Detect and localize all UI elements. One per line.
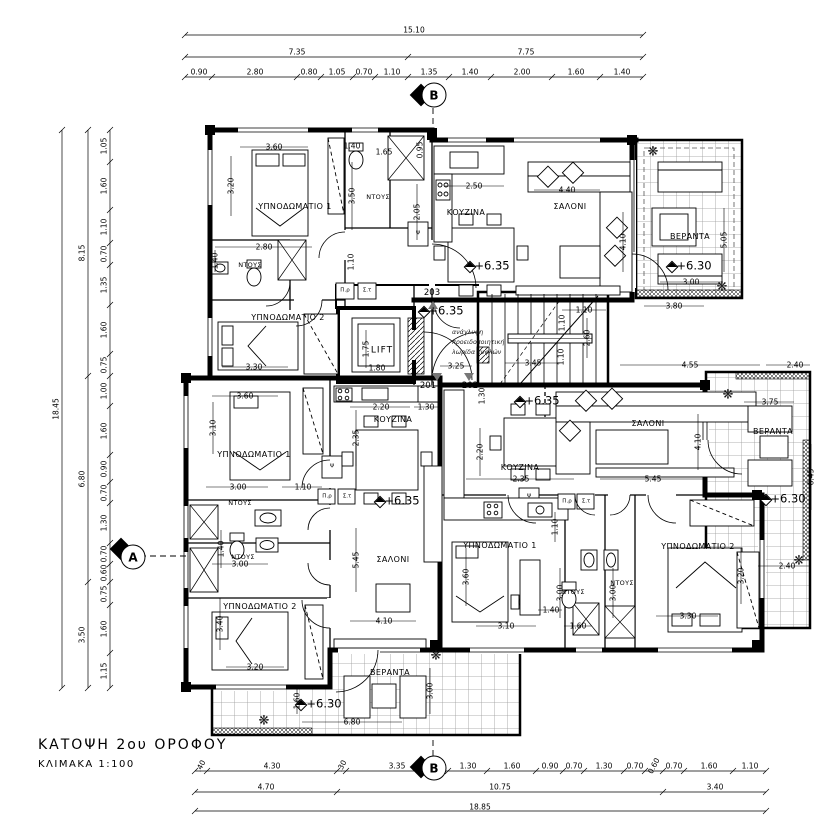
apartment-number-203: 203	[424, 289, 440, 298]
dim-label: 1.10	[558, 315, 566, 332]
dim-label: 0.70	[666, 762, 683, 770]
dim-label: 4.10	[376, 617, 393, 625]
dim-label: 1.10	[576, 306, 593, 314]
room-label-veranda: ΒΕΡΑΝΤΑ	[670, 233, 710, 241]
level-label: +6.35	[384, 495, 419, 507]
dim-label: 4.10	[694, 434, 702, 451]
room-label-bedroom1: ΥΠΝΟΔΩΜΑΤΙΟ 1	[258, 203, 332, 211]
dim-label: 3.25	[448, 362, 465, 370]
dim-label: 3.00	[232, 560, 249, 568]
room-label-bedroom2: ΥΠΝΟΔΩΜΑΤΙΟ 2	[223, 603, 297, 611]
dim-label: 1.60	[100, 423, 108, 440]
dim-label: 3.35	[389, 762, 406, 770]
room-label-kitchen: ΚΟΥΖΙΝΑ	[374, 416, 413, 424]
dim-label: 1.60	[100, 178, 108, 195]
dim-label: 0.90	[542, 762, 559, 770]
dim-label: 4.40	[559, 186, 576, 194]
dim-label: 2.80	[256, 243, 273, 251]
dim-label: 6.45	[807, 469, 815, 486]
dim-label: 1.60	[568, 68, 585, 76]
dim-label: 2.40	[779, 562, 796, 570]
dim-label: 4.30	[264, 762, 281, 770]
room-label-shower: ΝΤΟΥΣ	[366, 194, 390, 201]
room-label-bedroom1: ΥΠΝΟΔΩΜΑΤΙΟ 1	[463, 542, 537, 550]
dim-label: 3.10	[498, 622, 515, 630]
dim-label: 3.20	[247, 663, 264, 671]
dim-label: 3.60	[237, 392, 254, 400]
dim-label: 6.80	[344, 718, 361, 726]
room-label-shower: ΝΤΟΥΣ	[238, 262, 262, 269]
dim-label: 1.40	[462, 68, 479, 76]
section-marker-b-bottom: B	[422, 756, 447, 781]
dim-label: 1.30	[478, 388, 486, 405]
room-label-veranda: ΒΕΡΑΝΤΑ	[753, 428, 793, 436]
dim-label: 3.40	[216, 616, 224, 633]
dim-label: 2.20	[476, 444, 484, 461]
dim-label: 1.15	[100, 663, 108, 680]
dim-label: 2.35	[513, 475, 530, 483]
dim-label: 1.60	[570, 622, 587, 630]
dim-label: 4.55	[682, 361, 699, 369]
level-label: +6.35	[428, 305, 463, 317]
dim-label: 2.80	[247, 68, 264, 76]
dim-label: 6.80	[78, 471, 86, 488]
dim-label: 0.90	[191, 68, 208, 76]
room-label-bedroom1: ΥΠΝΟΔΩΜΑΤΙΟ 1	[217, 451, 291, 459]
dim-label: 0.70	[566, 762, 583, 770]
dim-label: 0.70	[100, 546, 108, 563]
dim-label: 2.40	[787, 361, 804, 369]
panel-label: Π.ρ	[340, 288, 349, 294]
water-heater-label: Ψ	[416, 231, 420, 237]
dim-label: 1.65	[376, 148, 393, 156]
room-label-bedroom2: ΥΠΝΟΔΩΜΑΤΙΟ 2	[251, 314, 325, 322]
room-label-shower: ΝΤΟΥΣ	[228, 500, 252, 507]
dim-label: 5.45	[352, 552, 360, 569]
room-label-veranda: ΒΕΡΑΝΤΑ	[370, 669, 410, 677]
dim-label: 15.10	[403, 26, 424, 34]
room-label-bedroom2: ΥΠΝΟΔΩΜΑΤΙΟ 2	[661, 543, 735, 551]
dim-label: 1.10	[742, 762, 759, 770]
plant-icon	[431, 650, 442, 663]
dim-label: 7.75	[518, 48, 535, 56]
dim-label: 1.30	[596, 762, 613, 770]
dim-label: 1.40	[543, 606, 560, 614]
plant-icon	[648, 146, 659, 159]
dim-label: 3.30	[680, 612, 697, 620]
dim-label: 5.05	[720, 232, 728, 249]
dim-label: 2.20	[373, 403, 390, 411]
room-label-living: ΣΑΛΟΝΙ	[376, 556, 409, 564]
dim-label: 2.35	[352, 430, 360, 447]
dim-label: 1.05	[100, 138, 108, 155]
dim-label: 0.70	[100, 246, 108, 263]
level-label: +6.30	[676, 260, 711, 272]
dim-label: 1.35	[100, 277, 108, 294]
dim-label: 7.35	[289, 48, 306, 56]
dim-label: 0.75	[100, 586, 108, 603]
dim-label: 4.10	[619, 234, 627, 251]
dim-label: 3.10	[209, 420, 217, 437]
dim-label: 2.60	[583, 330, 591, 347]
drawing-title: ΚΑΤΟΨΗ 2ου ΟΡΟΦΟΥ	[38, 738, 227, 752]
entry-arrow-icon	[464, 373, 474, 381]
note-line: λωρίδα τυφλών	[452, 350, 501, 356]
dim-label: 1.30	[418, 403, 435, 411]
section-marker-a-left: A	[121, 545, 146, 570]
panel-label: Π.ρ	[562, 499, 571, 505]
dim-label: 1.60	[293, 693, 301, 710]
floor-plan-drawing	[0, 0, 832, 825]
dim-label: 3.50	[78, 627, 86, 644]
dim-label: 18.85	[469, 803, 490, 811]
water-heater-label: Ψ	[527, 494, 531, 500]
plant-icon	[717, 281, 728, 294]
dim-label: 1.60	[100, 322, 108, 339]
dim-label: 18.45	[52, 398, 60, 419]
dim-label: 2.50	[466, 182, 483, 190]
dim-label: 3.00	[230, 483, 247, 491]
dim-label: 3.00	[556, 585, 564, 602]
dim-label: 1.80	[369, 364, 386, 372]
dim-label: 2.00	[514, 68, 531, 76]
dim-label: 0.70	[627, 762, 644, 770]
dim-label: 1.10	[551, 519, 559, 536]
dim-label: 3.00	[426, 683, 434, 700]
plant-icon	[723, 389, 734, 402]
dim-label: 2.05	[413, 204, 421, 221]
dim-label: 1.10	[557, 349, 565, 366]
level-label: +6.35	[474, 260, 509, 272]
dim-label: 1.10	[384, 68, 401, 76]
dim-label: 0.70	[100, 485, 108, 502]
dim-label: 1.60	[701, 762, 718, 770]
dim-label: 5.45	[645, 475, 662, 483]
dim-label: 1.35	[421, 68, 438, 76]
dim-label: 8.15	[78, 245, 86, 262]
dim-label: 10.75	[489, 783, 510, 791]
dim-label: 1.60	[100, 621, 108, 638]
dim-label: 1.10	[295, 483, 312, 491]
dim-label: 1.40	[211, 253, 219, 270]
note-line: προειδοποιητική	[452, 340, 504, 346]
dim-label: 1.40	[614, 68, 631, 76]
dim-label: 1.00	[100, 383, 108, 400]
level-label: +6.30	[306, 698, 341, 710]
dim-label: 3.40	[707, 783, 724, 791]
room-label-kitchen: ΚΟΥΖΙΝΑ	[447, 209, 486, 217]
dim-label: 4.70	[258, 783, 275, 791]
dim-label: 1.40	[217, 541, 225, 558]
lift-label: LIFT	[371, 347, 393, 356]
dim-label: 1.75	[362, 341, 370, 358]
dim-label: 1.05	[329, 68, 346, 76]
dim-label: 0.95	[416, 142, 424, 159]
dim-label: 1.10	[100, 219, 108, 236]
entry-arrow-icon	[432, 373, 442, 381]
dim-label: 0.70	[356, 68, 373, 76]
water-heater-label: Ψ	[330, 464, 334, 470]
room-label-shower: ΝΤΟΥΣ	[561, 589, 585, 596]
panel-label: Σ.τ	[343, 494, 352, 500]
dim-label: 1.40	[344, 142, 361, 150]
dim-label: 3.60	[266, 143, 283, 151]
panel-label: Π.ρ	[322, 494, 331, 500]
floor-plan-sheet: ΚΑΤΟΨΗ 2ου ΟΡΟΦΟΥ ΚΛΙΜΑΚΑ 1:100 B B A 20…	[0, 0, 832, 825]
dim-label: 3.20	[227, 178, 235, 195]
apartment-number-201: 201	[420, 382, 436, 391]
dim-label: 3.50	[348, 188, 356, 205]
plant-icon	[259, 715, 270, 728]
dim-label: 3.45	[525, 359, 542, 367]
dim-label: 0.90	[100, 461, 108, 478]
dim-label: 0.75	[100, 357, 108, 374]
dim-label: 0.80	[301, 68, 318, 76]
dim-label: 3.00	[683, 278, 700, 286]
apartment-number-202: 202	[462, 382, 478, 391]
dim-label: 1.30	[460, 762, 477, 770]
dim-label: 3.20	[737, 568, 745, 585]
room-label-living: ΣΑΛΟΝΙ	[553, 203, 586, 211]
panel-label: Σ.τ	[582, 499, 591, 505]
dim-label: 3.80	[666, 302, 683, 310]
note-line: ανάγλυφη	[452, 330, 483, 336]
level-label: +6.35	[524, 395, 559, 407]
dim-label: 3.60	[462, 569, 470, 586]
dim-label: 0.60	[100, 565, 108, 582]
dim-label: 1.30	[100, 515, 108, 532]
room-label-kitchen: ΚΟΥΖΙΝΑ	[501, 464, 540, 472]
dim-label: 3.30	[246, 363, 263, 371]
dim-label: 3.00	[609, 585, 617, 602]
dim-label: 1.10	[347, 254, 355, 271]
dim-label: 3.75	[762, 398, 779, 406]
level-label: +6.30	[770, 493, 805, 505]
dim-label: 1.60	[504, 762, 521, 770]
panel-label: Σ.τ	[363, 288, 372, 294]
section-marker-b-top: B	[422, 83, 447, 108]
drawing-scale: ΚΛΙΜΑΚΑ 1:100	[38, 760, 135, 770]
room-label-living: ΣΑΛΟΝΙ	[631, 420, 664, 428]
